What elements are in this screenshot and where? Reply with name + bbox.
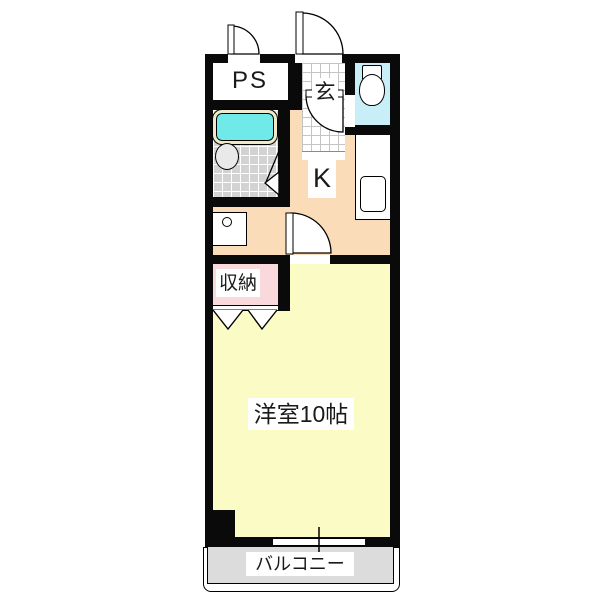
label-balcony: バルコニー — [246, 552, 354, 576]
kitchen-sink — [360, 176, 386, 212]
kitchen-room-door-opening — [287, 255, 330, 264]
label-closet: 収納 — [216, 269, 260, 297]
label-ps: PS — [226, 68, 274, 94]
floorplan-canvas: PS 玄 K 収納 洋室10帖 バルコニー — [0, 0, 600, 600]
pillar — [205, 510, 235, 545]
toilet-bowl — [359, 74, 385, 106]
label-entrance: 玄 — [312, 78, 338, 106]
entrance-door-opening — [295, 54, 342, 63]
entrance-door-arc — [302, 13, 343, 54]
balcony-window-opening — [273, 538, 365, 546]
label-kitchen: K — [308, 158, 336, 198]
washbasin — [215, 143, 239, 170]
ps-door-arc — [231, 26, 259, 54]
label-western-room: 洋室10帖 — [248, 398, 354, 430]
closet-right-wall — [278, 255, 290, 311]
bathtub — [213, 110, 277, 144]
entrance-door-leaf — [296, 12, 303, 54]
toilet-door-opening — [345, 95, 355, 127]
ps-door-opening — [228, 54, 260, 63]
closet-door-track — [213, 305, 278, 311]
ps-door-leaf — [228, 25, 234, 54]
room-entrance-tiles — [302, 63, 345, 151]
washer-faucet-icon — [222, 217, 232, 227]
